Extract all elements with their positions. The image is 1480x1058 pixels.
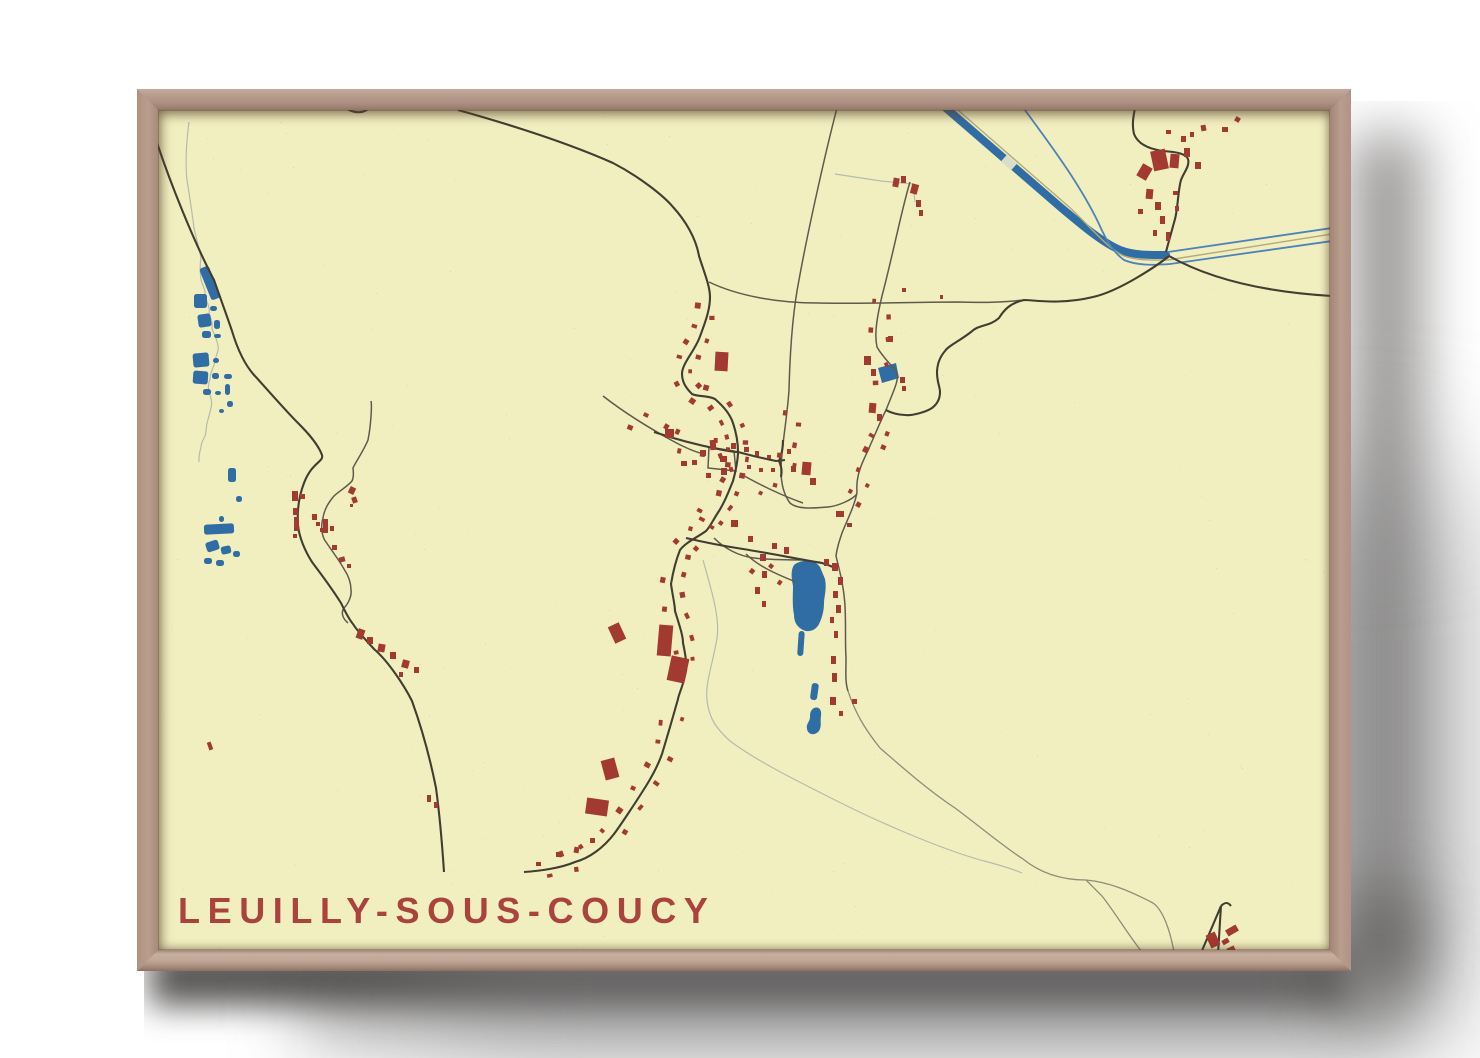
- svg-text:LEUILLY-SOUS-COUCY: LEUILLY-SOUS-COUCY: [178, 890, 716, 931]
